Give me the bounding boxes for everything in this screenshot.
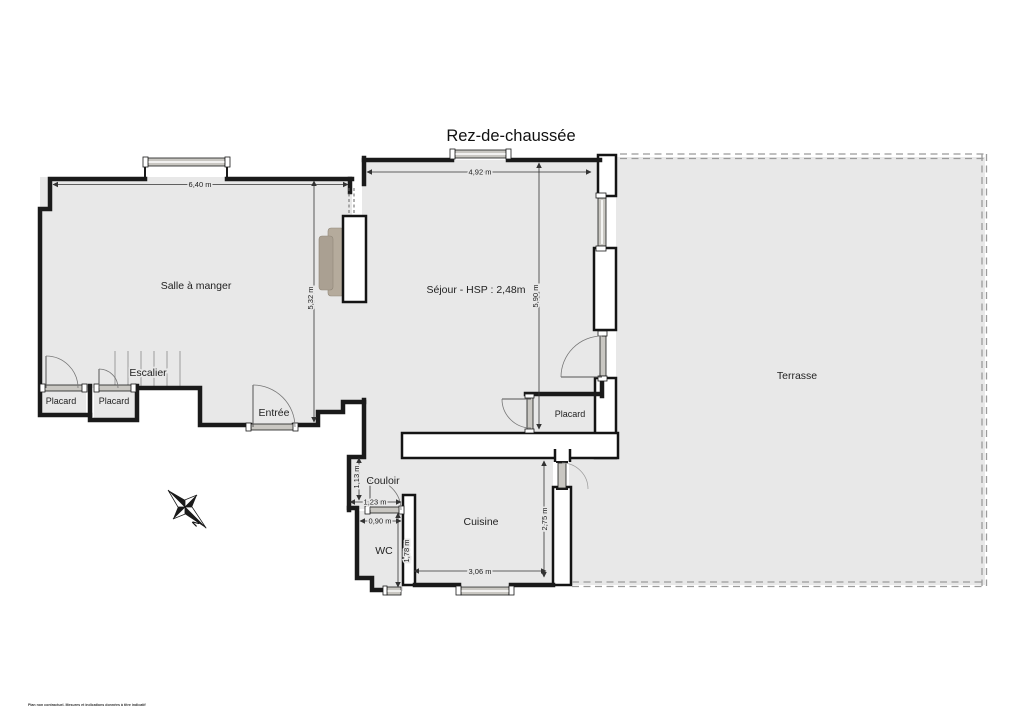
room-label-placard-1: Placard <box>46 396 77 406</box>
dim-label: 4,92 m <box>469 168 492 177</box>
dim-label: 1,23 m <box>364 498 387 507</box>
floor-plan-canvas: 6,40 m 4,92 m 5,32 m 5,90 m 1,13 m 1,23 … <box>0 0 1024 724</box>
footer-disclaimer: Plan non contractuel. Mesures et indicat… <box>28 703 146 707</box>
compass-rose: N <box>156 478 218 540</box>
room-label-wc: WC <box>375 545 393 557</box>
floor-areas <box>40 157 985 591</box>
window-cuisine <box>456 586 514 595</box>
fireplace <box>319 228 344 296</box>
room-label-sejour: Séjour - HSP : 2,48m <box>426 284 525 296</box>
window-salle-a-manger <box>143 157 230 177</box>
dim-label: 5,90 m <box>531 285 540 308</box>
window-wc <box>383 586 401 595</box>
dim-label: 6,40 m <box>189 180 212 189</box>
dim-label: 1,78 m <box>402 540 411 563</box>
room-label-terrasse: Terrasse <box>777 370 817 382</box>
room-label-escalier: Escalier <box>129 367 167 379</box>
room-label-entree: Entrée <box>259 407 290 419</box>
room-label-placard-2: Placard <box>99 396 130 406</box>
dim-label: 2,75 m <box>540 508 549 531</box>
room-label-cuisine: Cuisine <box>463 516 498 528</box>
floor-plan-page: 6,40 m 4,92 m 5,32 m 5,90 m 1,13 m 1,23 … <box>0 0 1024 724</box>
window-sejour-top <box>450 149 511 159</box>
room-label-salle-a-manger: Salle à manger <box>161 280 232 292</box>
plan-title: Rez-de-chaussée <box>446 127 575 145</box>
room-label-placard-3: Placard <box>555 409 586 419</box>
dim-label: 5,32 m <box>306 287 315 310</box>
dim-label: 1,13 m <box>352 466 361 489</box>
band-door-notch <box>555 449 570 462</box>
dim-label: 0,90 m <box>369 517 392 526</box>
dim-label: 3,06 m <box>469 567 492 576</box>
room-label-couloir: Couloir <box>366 475 400 487</box>
